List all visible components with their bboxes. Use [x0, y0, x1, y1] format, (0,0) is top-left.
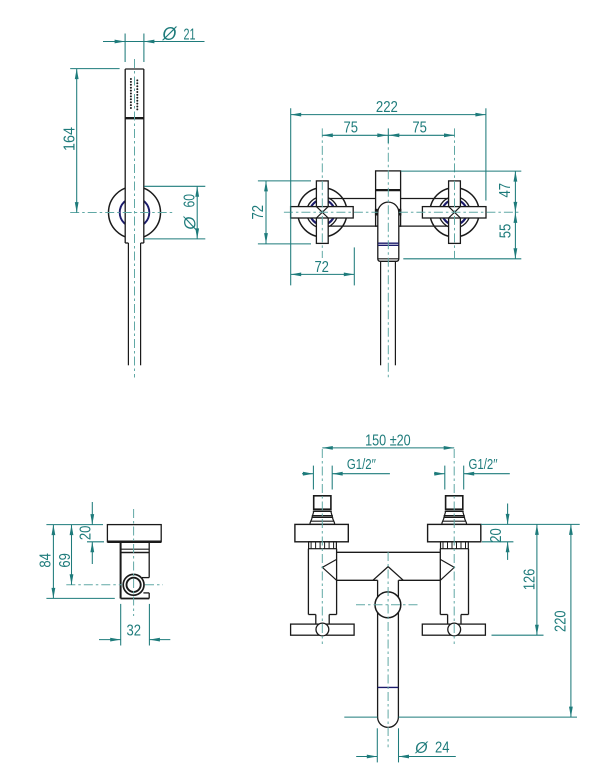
svg-text:20: 20 — [78, 525, 95, 540]
svg-text:72: 72 — [314, 259, 329, 276]
svg-text:126: 126 — [521, 569, 538, 591]
svg-text:84: 84 — [38, 553, 55, 568]
svg-text:20: 20 — [488, 528, 505, 543]
svg-text:75: 75 — [344, 120, 359, 137]
svg-text:222: 222 — [376, 99, 398, 116]
svg-text:21: 21 — [184, 26, 196, 43]
svg-text:164: 164 — [62, 127, 79, 151]
svg-text:60: 60 — [181, 194, 198, 208]
svg-text:G1/2′′: G1/2′′ — [347, 457, 376, 473]
svg-text:Ø: Ø — [161, 24, 177, 44]
svg-text:55: 55 — [497, 224, 514, 239]
svg-text:69: 69 — [57, 553, 74, 568]
svg-text:72: 72 — [250, 205, 267, 220]
svg-text:220: 220 — [553, 610, 570, 632]
svg-text:24: 24 — [435, 739, 450, 756]
svg-text:G1/2′′: G1/2′′ — [469, 457, 498, 473]
svg-text:150 ±20: 150 ±20 — [365, 432, 411, 449]
svg-text:32: 32 — [127, 623, 142, 640]
svg-text:75: 75 — [412, 120, 427, 137]
svg-text:47: 47 — [497, 183, 514, 198]
svg-text:Ø: Ø — [180, 215, 199, 231]
svg-text:Ø: Ø — [414, 740, 429, 757]
